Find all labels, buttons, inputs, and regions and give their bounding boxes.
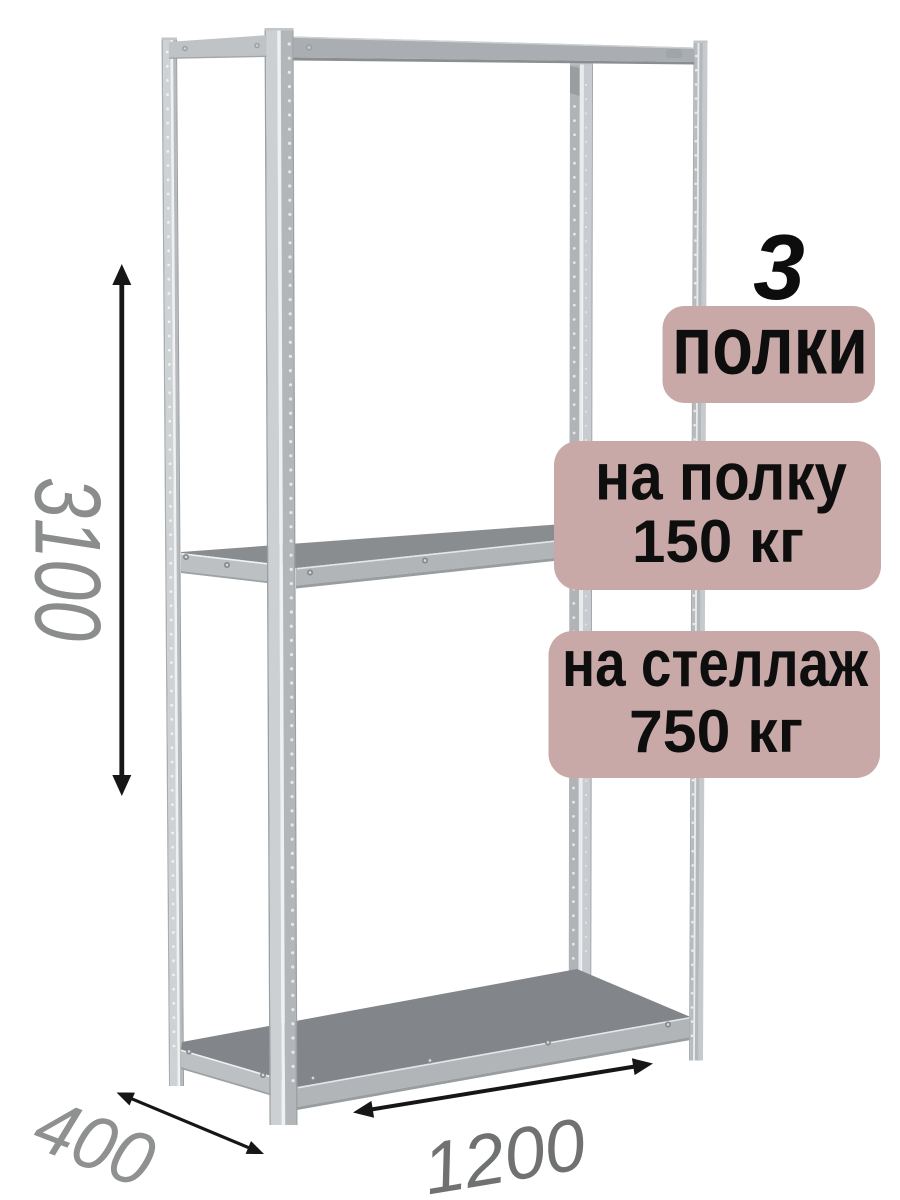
svg-text:полки: полки: [672, 299, 868, 392]
svg-text:на полку: на полку: [595, 440, 847, 515]
svg-text:150 кг: 150 кг: [632, 508, 804, 575]
svg-text:3100: 3100: [16, 477, 121, 641]
svg-text:на стеллаж: на стеллаж: [562, 626, 869, 700]
svg-text:750 кг: 750 кг: [629, 698, 803, 765]
